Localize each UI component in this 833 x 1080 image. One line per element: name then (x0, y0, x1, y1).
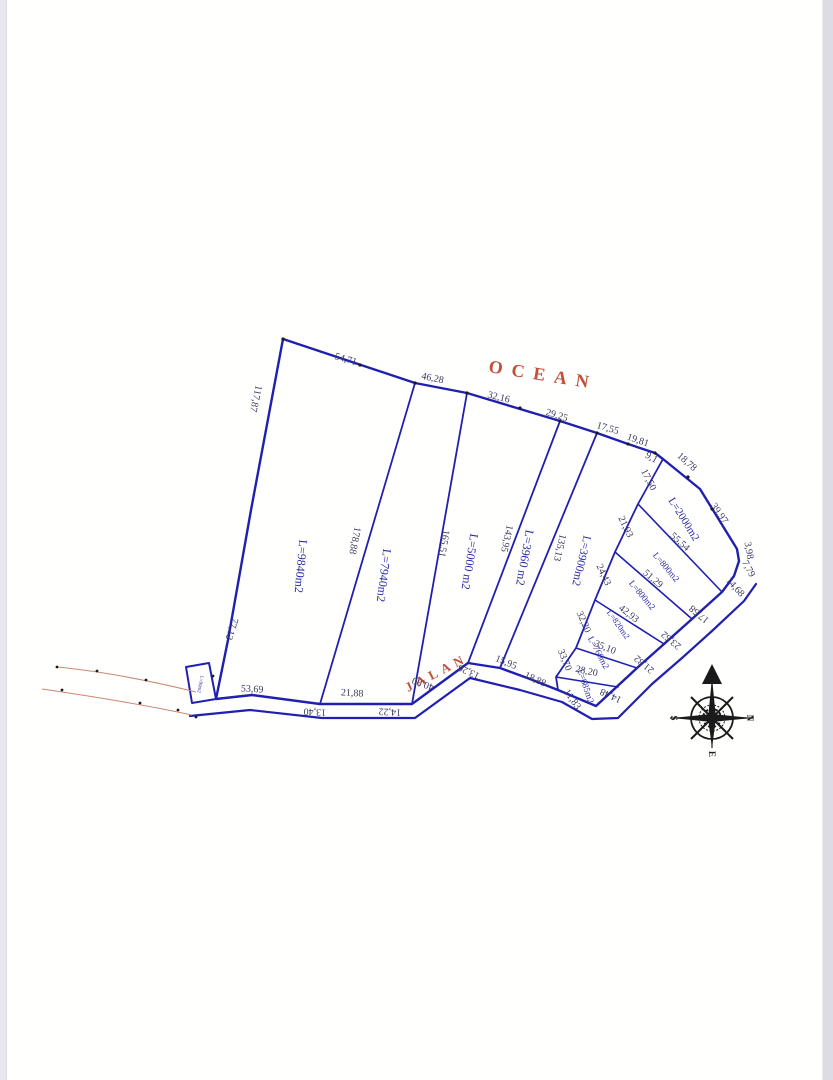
measure-bottom: 18,88 (523, 670, 548, 689)
red-road-line-2 (42, 689, 192, 715)
measure-east: 3,98 (742, 541, 756, 560)
small-parcel-label: L=90m2 (195, 675, 203, 693)
measure-se: 14,48 (598, 686, 623, 705)
parcel-label: L=7940m2 (374, 548, 394, 603)
measure-top: 29,25 (544, 407, 569, 424)
compass-e-label: E (707, 751, 717, 757)
parcel-divider-1 (320, 383, 415, 704)
measure-top: 54,71 (333, 351, 358, 368)
survey-plan-page: OCEAN JALAN L=9840m2 L=7940m2 L=5000 m2 … (0, 0, 833, 1080)
measure-bottom: 14,22 (378, 705, 401, 717)
ocean-label: OCEAN (487, 356, 599, 393)
measure-divider: 165,51 (436, 529, 452, 558)
measure-divider: 178,88 (346, 526, 362, 555)
compass-north-arrow-icon (702, 664, 722, 684)
measure-cluster-left: 17,50 (638, 467, 658, 492)
measure-west: 77,12 (223, 616, 240, 641)
compass-n-label: N (745, 715, 755, 722)
land-parcel-map: OCEAN JALAN L=9840m2 L=7940m2 L=5000 m2 … (0, 0, 833, 1080)
measure-cluster-cross: 51,29 (641, 568, 665, 591)
property-boundary (216, 339, 739, 706)
measure-east: 39,97 (708, 501, 730, 526)
compass-s-label: S (669, 715, 679, 720)
measure-top: 9,1 (643, 450, 659, 466)
parcel-label: L=9840m2 (292, 539, 311, 593)
measure-bottom: 11,83 (561, 687, 583, 711)
parcel-label: L=3900m2 (569, 534, 592, 587)
red-road-line-1 (57, 667, 196, 692)
measure-se: 21,82 (632, 652, 656, 675)
measure-east: 7,79 (739, 559, 757, 580)
measure-bottom: 53,69 (241, 683, 264, 695)
measure-se: 23,52 (659, 628, 683, 651)
measure-bottom: 13,40 (303, 705, 326, 717)
measure-bottom: 21,88 (341, 687, 364, 699)
measure-top: 32,16 (486, 390, 510, 406)
measure-cluster-left: 33,70 (555, 648, 574, 673)
parcel-label: L=5000 m2 (459, 533, 482, 591)
compass-rose-icon (670, 664, 754, 748)
measure-cluster-left: 24,43 (594, 562, 613, 587)
measure-west: 117,87 (247, 384, 263, 413)
parcel-divider-3 (468, 421, 560, 663)
